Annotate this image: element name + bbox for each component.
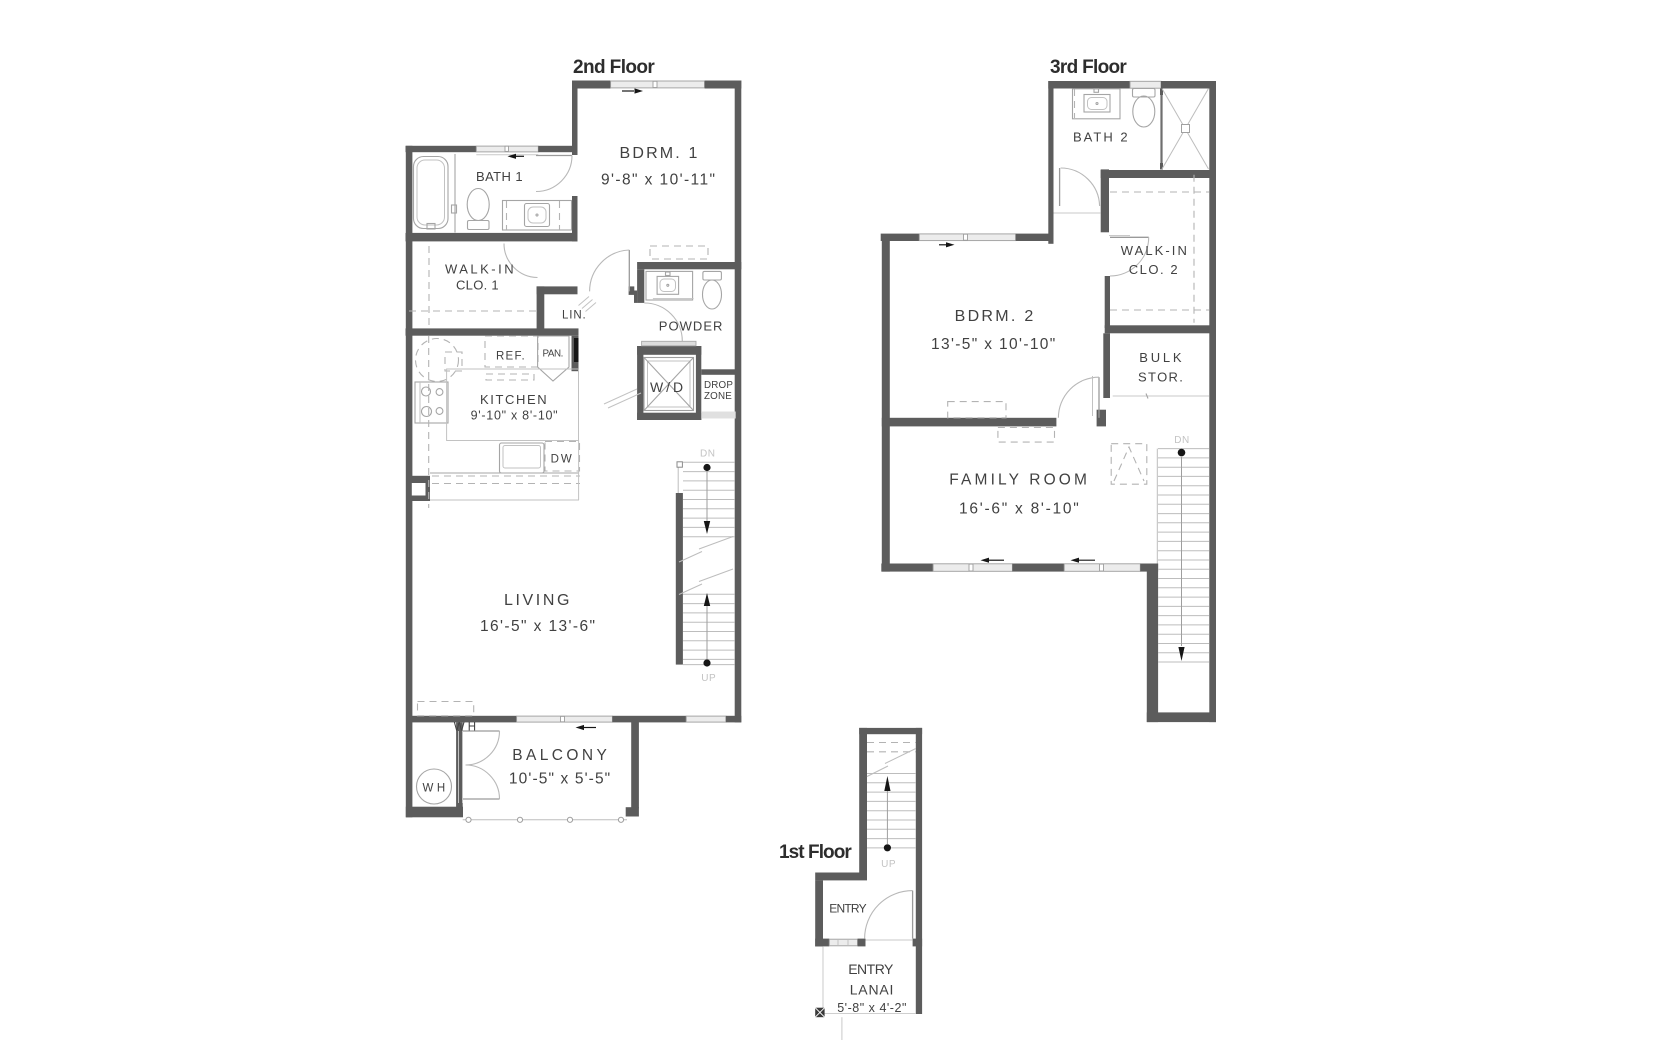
svg-text:ENTRY: ENTRY: [829, 902, 867, 916]
svg-text:9'-8" x 10'-11": 9'-8" x 10'-11": [601, 172, 715, 189]
svg-text:ZONE: ZONE: [704, 391, 732, 402]
svg-text:DW: DW: [551, 454, 572, 466]
svg-text:UP: UP: [881, 859, 896, 870]
svg-text:LIN.: LIN.: [562, 310, 586, 322]
svg-text:9'-10" x 8'-10": 9'-10" x 8'-10": [471, 409, 558, 423]
svg-text:3rd Floor: 3rd Floor: [1050, 57, 1127, 78]
svg-text:STOR.: STOR.: [1138, 370, 1183, 385]
svg-text:1st Floor: 1st Floor: [779, 842, 852, 863]
svg-text:W/D: W/D: [650, 379, 684, 395]
svg-text:LANAI: LANAI: [850, 982, 894, 998]
svg-text:POWDER: POWDER: [659, 319, 723, 334]
svg-text:FAMILY ROOM: FAMILY ROOM: [949, 472, 1087, 489]
svg-text:WALK-IN: WALK-IN: [1121, 243, 1188, 258]
svg-text:DN: DN: [700, 449, 715, 460]
svg-text:WALK-IN: WALK-IN: [445, 262, 514, 277]
svg-text:PAN.: PAN.: [543, 349, 564, 360]
svg-text:DN: DN: [1174, 435, 1189, 446]
svg-text:KITCHEN: KITCHEN: [480, 392, 547, 407]
svg-text:2nd Floor: 2nd Floor: [573, 57, 655, 78]
svg-text:DROP: DROP: [704, 380, 733, 391]
svg-text:REF.: REF.: [496, 351, 525, 363]
svg-text:BATH 1: BATH 1: [476, 169, 523, 184]
svg-text:BALCONY: BALCONY: [512, 747, 607, 764]
svg-text:UP: UP: [701, 673, 716, 684]
svg-text:10'-5" x 5'-5": 10'-5" x 5'-5": [509, 771, 610, 788]
svg-text:CLO. 2: CLO. 2: [1129, 262, 1178, 277]
svg-text:5'-8" x 4'-2": 5'-8" x 4'-2": [837, 1001, 906, 1015]
svg-text:ENTRY: ENTRY: [848, 961, 894, 977]
svg-text:16'-5" x 13'-6": 16'-5" x 13'-6": [480, 618, 595, 635]
svg-text:BATH 2: BATH 2: [1073, 130, 1128, 145]
svg-text:16'-6" x 8'-10": 16'-6" x 8'-10": [959, 501, 1079, 518]
svg-text:CLO. 1: CLO. 1: [456, 278, 499, 293]
